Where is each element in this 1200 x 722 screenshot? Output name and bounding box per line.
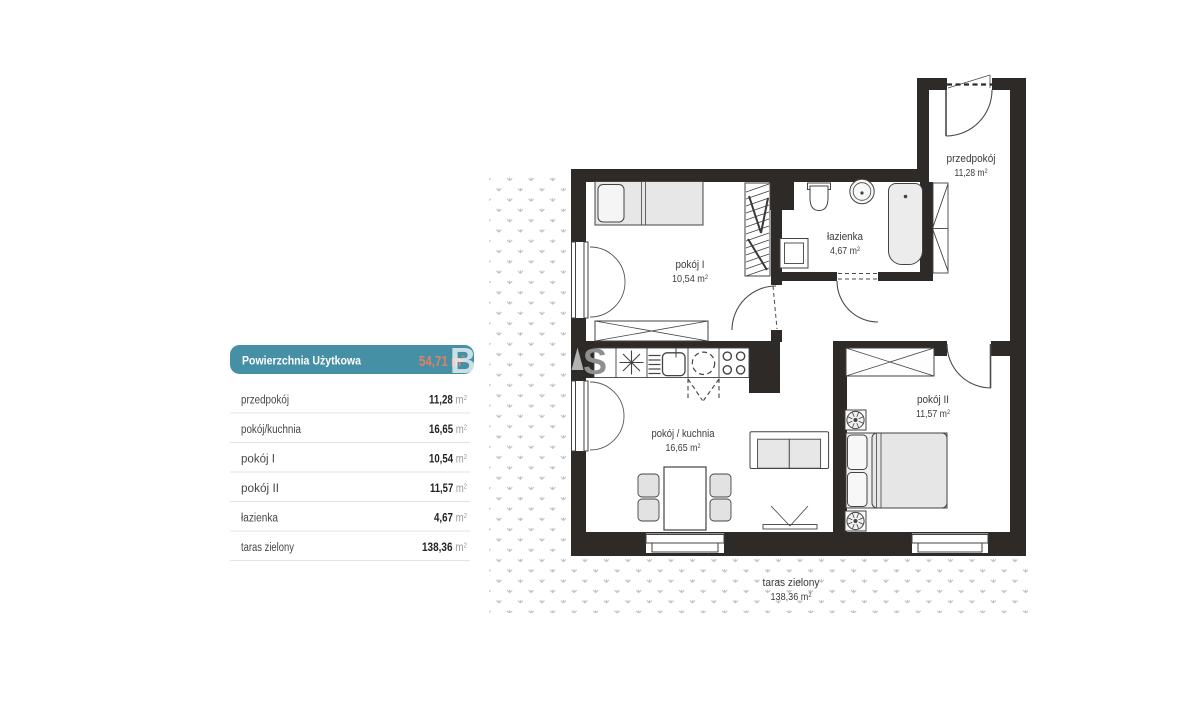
svg-text:Powierzchnia Użytkowa: Powierzchnia Użytkowa [242, 356, 362, 368]
svg-text:pokój II: pokój II [917, 394, 949, 406]
svg-text:taras zielony: taras zielony [763, 577, 820, 589]
svg-text:przedpokój: przedpokój [241, 395, 289, 407]
svg-text:16,65 m2: 16,65 m2 [666, 442, 701, 454]
svg-text:B: B [450, 340, 476, 381]
svg-text:pokój / kuchnia: pokój / kuchnia [652, 428, 716, 440]
svg-text:S: S [583, 341, 607, 382]
svg-text:przedpokój: przedpokój [947, 153, 996, 165]
svg-text:pokój I: pokój I [676, 259, 705, 271]
svg-text:11,28 m2: 11,28 m2 [429, 395, 467, 407]
svg-text:4,67 m2: 4,67 m2 [830, 245, 860, 257]
svg-text:16,65 m2: 16,65 m2 [429, 424, 467, 436]
svg-text:łazienka: łazienka [241, 513, 279, 525]
svg-text:11,28 m2: 11,28 m2 [955, 167, 988, 179]
svg-text:10,54 m2: 10,54 m2 [672, 273, 708, 285]
svg-text:11,57 m2: 11,57 m2 [916, 408, 950, 420]
svg-text:pokój II: pokój II [241, 483, 279, 495]
svg-text:4,67 m2: 4,67 m2 [434, 513, 467, 525]
svg-text:11,57 m2: 11,57 m2 [430, 483, 467, 495]
svg-text:łazienka: łazienka [827, 231, 864, 243]
svg-text:taras zielony: taras zielony [241, 542, 294, 554]
svg-text:pokój I: pokój I [241, 454, 275, 466]
svg-text:pokój/kuchnia: pokój/kuchnia [241, 424, 302, 436]
svg-text:138,36 m2: 138,36 m2 [422, 542, 467, 554]
svg-text:10,54 m2: 10,54 m2 [429, 454, 467, 466]
svg-text:138,36 m2: 138,36 m2 [771, 591, 812, 603]
